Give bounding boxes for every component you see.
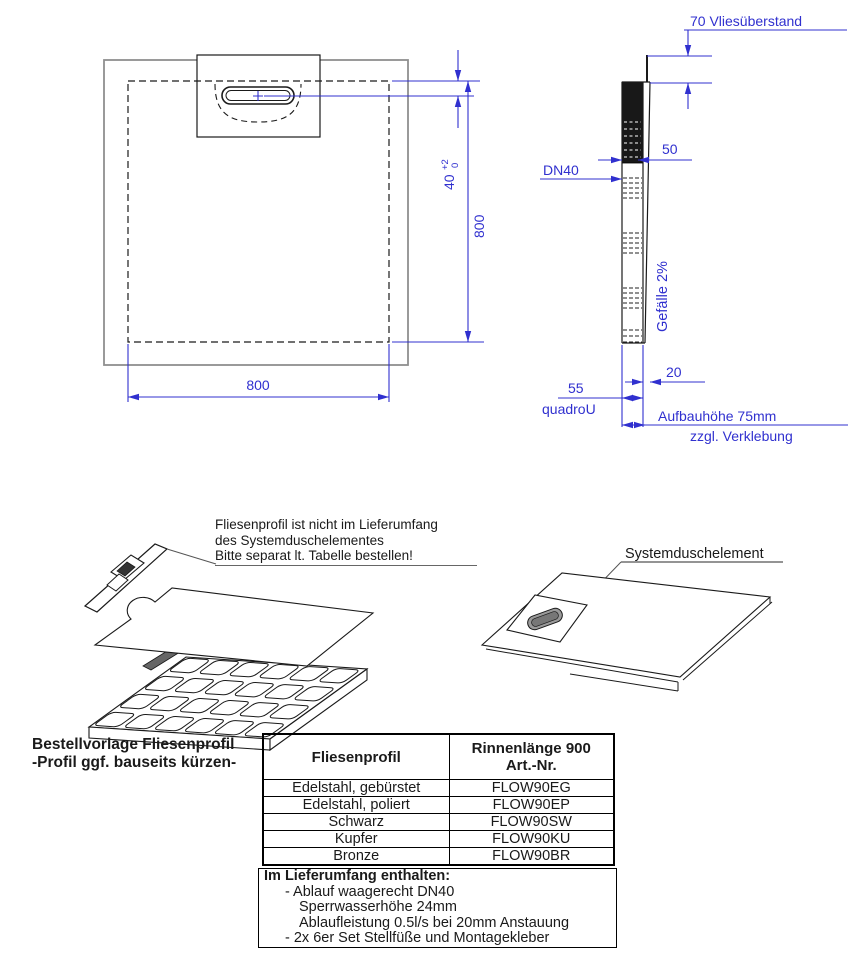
artnr-cell: FLOW90BR — [449, 848, 614, 866]
artnr-cell: FLOW90KU — [449, 831, 614, 848]
scope-item: - 2x 6er Set Stellfüße und Montagekleber — [259, 931, 616, 947]
artnr-cell: FLOW90SW — [449, 814, 614, 831]
table-row: Schwarz FLOW90SW — [263, 814, 614, 831]
dim800v-value: 800 — [471, 214, 487, 238]
order-title-line1: Bestellvorlage Fliesenprofil — [32, 736, 236, 754]
col-header-artnr: Rinnenlänge 900 Art.-Nr. — [449, 734, 614, 780]
hatch-band-1 — [623, 178, 642, 198]
profile-note-line2: des Systemduschelementes — [215, 533, 477, 549]
order-template-title: Bestellvorlage Fliesenprofil -Profil ggf… — [32, 736, 236, 772]
exploded-view-drawing — [55, 535, 385, 765]
artnr-cell: FLOW90EG — [449, 780, 614, 797]
profil-cell: Kupfer — [263, 831, 449, 848]
hatch-band-2 — [623, 233, 642, 253]
hatch-band-3 — [623, 288, 642, 308]
profile-note: Fliesenprofil ist nicht im Lieferumfang … — [215, 517, 477, 566]
dim70-label: 70 Vliesüberstand — [690, 13, 802, 29]
dn40-label: DN40 — [543, 162, 579, 178]
profile-note-line3: Bitte separat lt. Tabelle bestellen! — [215, 548, 477, 564]
table-row: Edelstahl, poliert FLOW90EP — [263, 797, 614, 814]
dim800h-value: 800 — [246, 377, 270, 393]
col-header-artnr-line2: Art.-Nr. — [450, 757, 614, 774]
scope-item: - Ablauf waagerecht DN40 — [259, 885, 616, 901]
cover-sheet — [95, 588, 373, 666]
system-element-drawing: Systemduschelement — [470, 540, 864, 700]
drawing-sheet: 40 +2 0 800 800 — [0, 0, 864, 967]
product-name: quadroU — [542, 401, 596, 417]
scope-item: Ablaufleistung 0.5l/s bei 20mm Anstauung — [259, 916, 616, 932]
build-height-line2: zzgl. Verklebung — [690, 428, 793, 444]
order-title-line2: -Profil ggf. bauseits kürzen- — [32, 754, 236, 772]
side-view-drawing: 70 Vliesüberstand 50 DN40 Gefälle 2% 20 … — [540, 10, 864, 460]
artnr-cell: FLOW90EP — [449, 797, 614, 814]
note-leader — [167, 549, 216, 564]
dim55-value: 55 — [568, 380, 584, 396]
hatch-band-4 — [623, 330, 642, 342]
table-header-row: Fliesenprofil Rinnenlänge 900 Art.-Nr. — [263, 734, 614, 780]
dim40-tol-minus: 0 — [450, 163, 461, 168]
profil-cell: Bronze — [263, 848, 449, 866]
table-row: Bronze FLOW90BR — [263, 848, 614, 866]
col-header-fliesenprofil: Fliesenprofil — [263, 734, 449, 780]
dim20-value: 20 — [666, 364, 682, 380]
profil-cell: Edelstahl, gebürstet — [263, 780, 449, 797]
slope-label: Gefälle 2% — [655, 261, 671, 332]
system-element-label: Systemduschelement — [625, 546, 764, 562]
table-row: Kupfer FLOW90KU — [263, 831, 614, 848]
build-height-line1: Aufbauhöhe 75mm — [658, 408, 776, 424]
scope-of-delivery-box: Im Lieferumfang enthalten: - Ablauf waag… — [258, 868, 617, 948]
top-view-drawing: 40 +2 0 800 800 — [60, 38, 500, 448]
profil-cell: Schwarz — [263, 814, 449, 831]
scope-title: Im Lieferumfang enthalten: — [259, 869, 616, 885]
profile-table: Fliesenprofil Rinnenlänge 900 Art.-Nr. E… — [262, 733, 615, 866]
profil-cell: Edelstahl, poliert — [263, 797, 449, 814]
profile-note-line1: Fliesenprofil ist nicht im Lieferumfang — [215, 517, 477, 533]
dim40-text: 40 +2 0 — [440, 159, 461, 190]
table-row: Edelstahl, gebürstet FLOW90EG — [263, 780, 614, 797]
scope-item: Sperrwasserhöhe 24mm — [259, 900, 616, 916]
col-header-artnr-line1: Rinnenlänge 900 — [450, 740, 614, 757]
dim50-value: 50 — [662, 141, 678, 157]
dim40-value: 40 — [441, 174, 457, 190]
